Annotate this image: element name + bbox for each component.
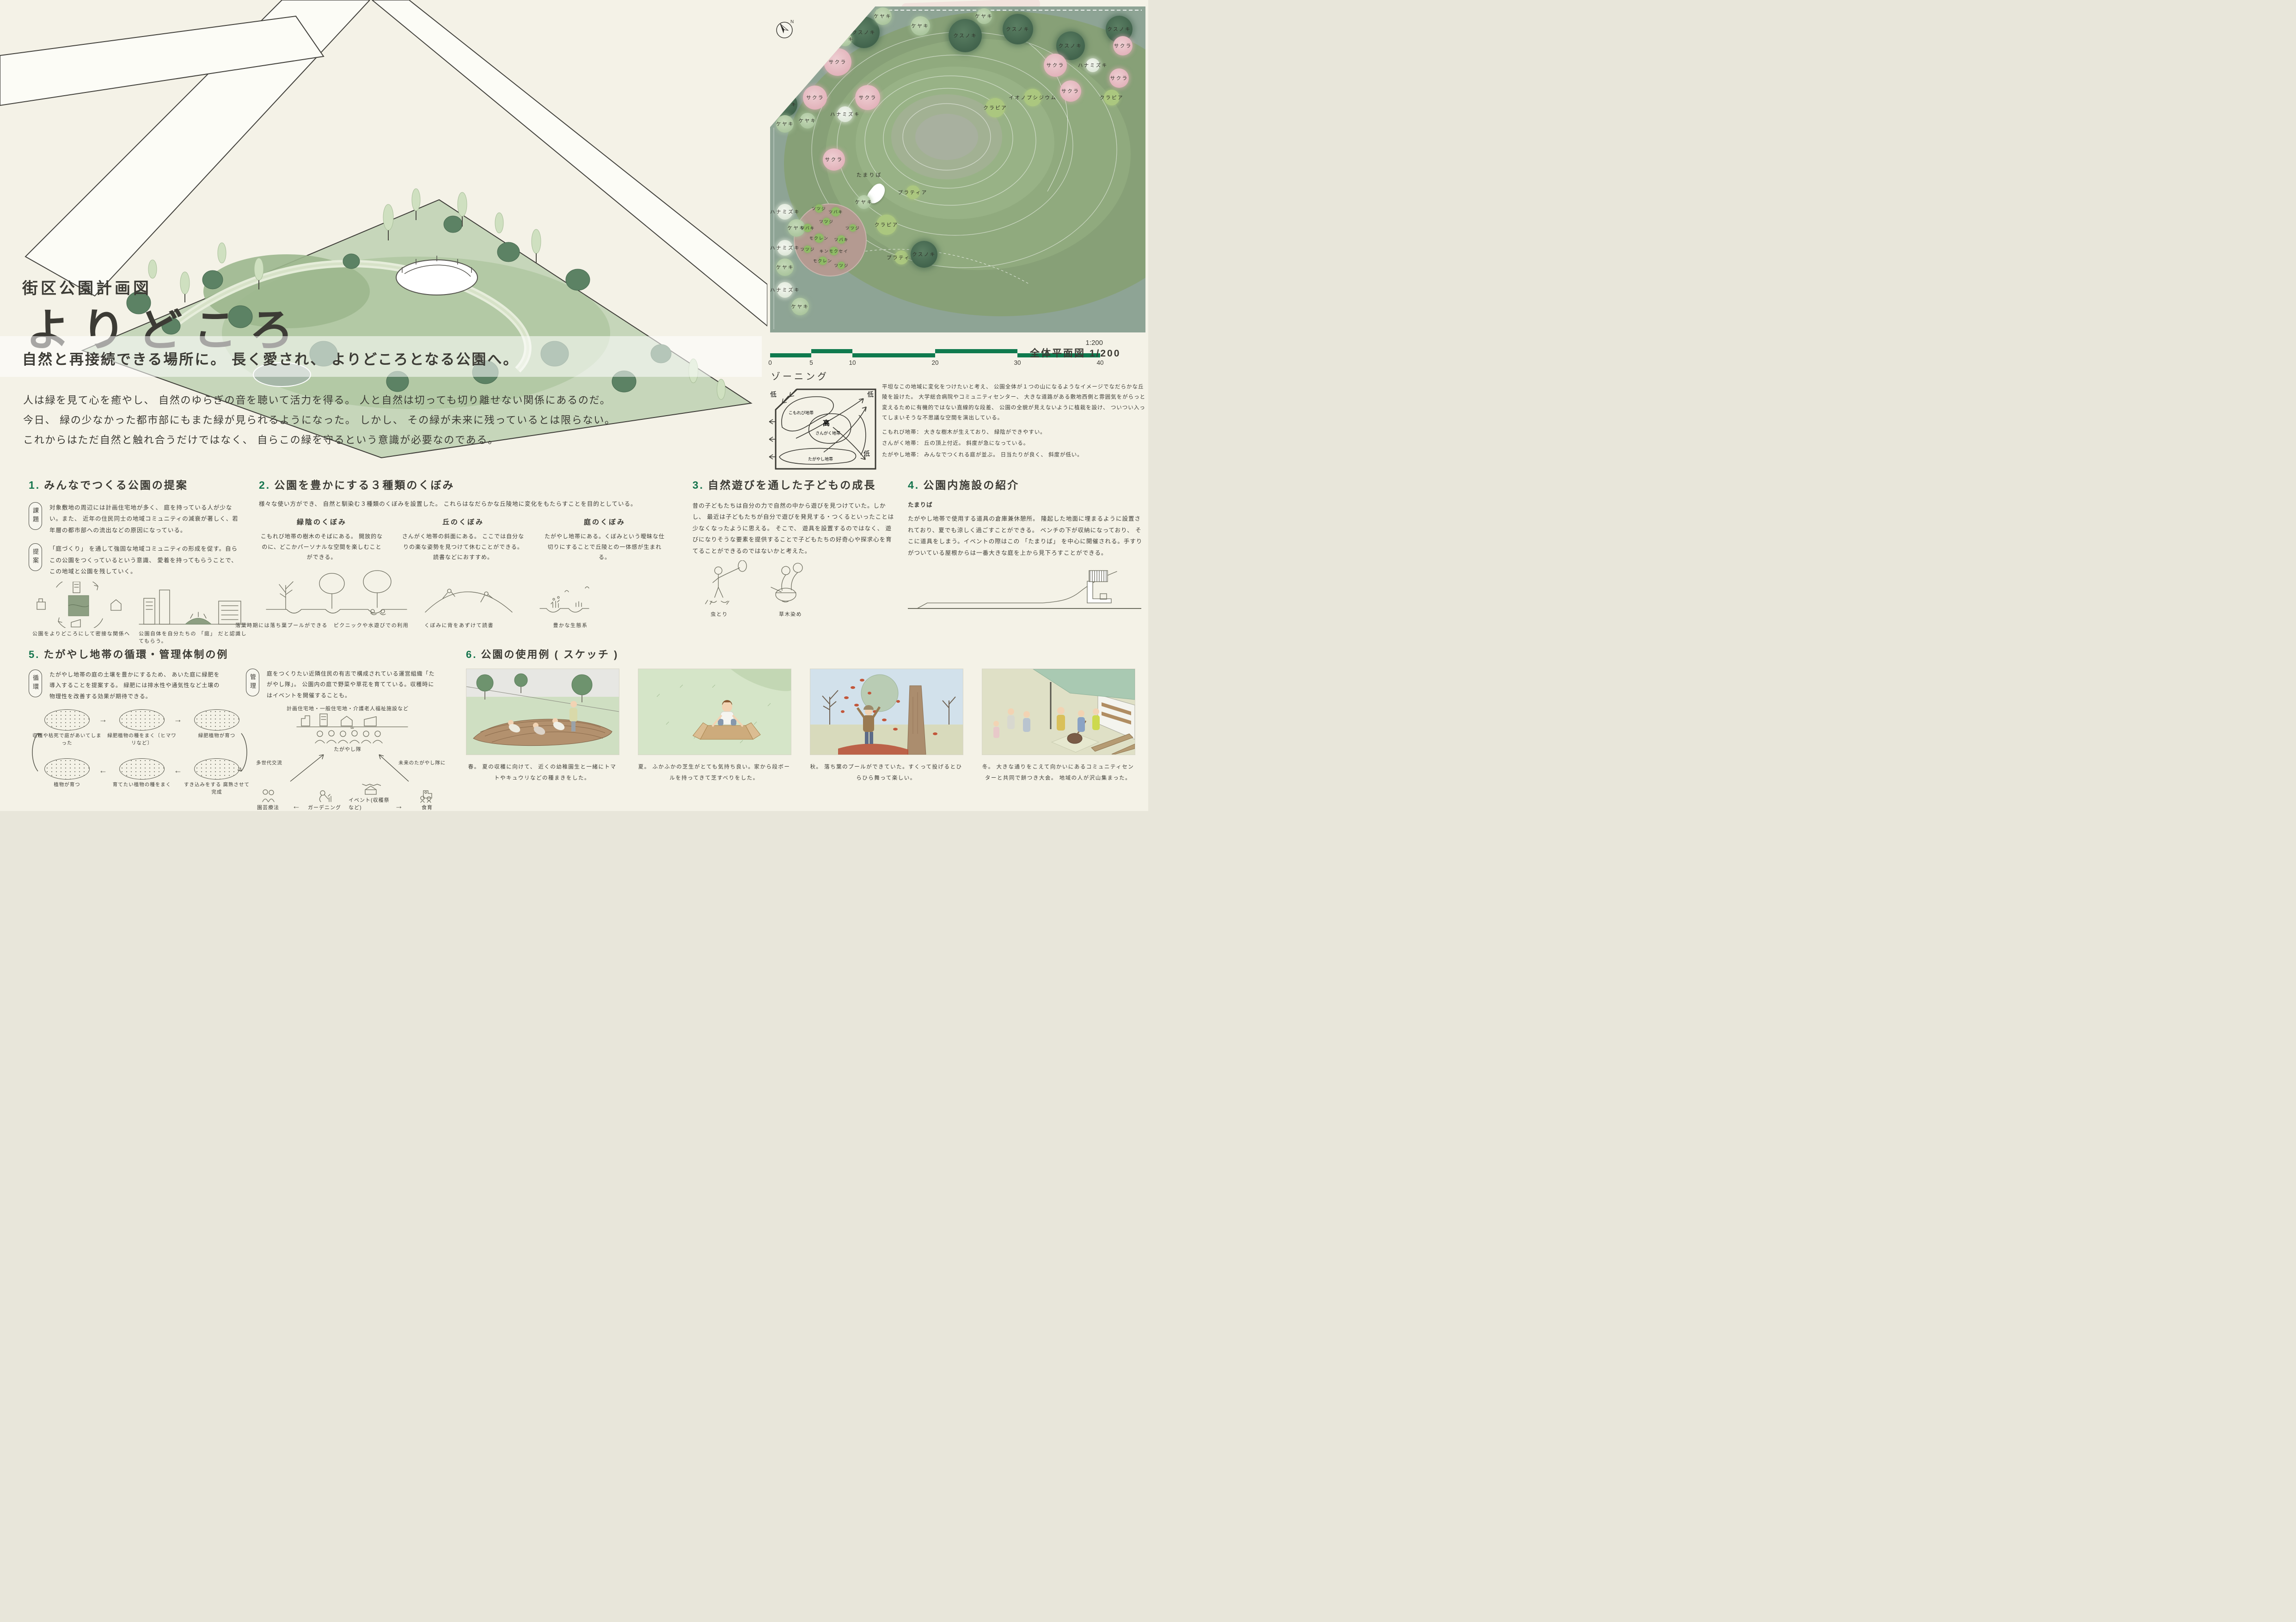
plan-tree-pink: サクラ: [855, 85, 880, 110]
org-right-arrow-label: 未来のたがやし隊に: [398, 759, 446, 766]
tree-label: ツツジ: [819, 219, 834, 225]
kubomi-desc: たがやし地帯にある。くぼみという曖昧な仕切りにすることで丘陵との一体感が生まれる…: [542, 531, 667, 562]
plan-tree-ground: クラピア: [1104, 90, 1120, 105]
kubomi-columns: 緑陰のくぼみこもれび地帯の樹木のそばにある。 開放的なのに、どこかパーソナルな空…: [259, 517, 675, 562]
community-cycle-diagram: [29, 582, 128, 628]
tamariba-subtitle: たまりば: [908, 499, 1144, 510]
tree-label: ケヤキ: [776, 120, 794, 127]
section-4-text: たがやし地帯で使用する道具の倉庫兼休憩所。 隆起した地面に埋まるように設置されて…: [908, 513, 1144, 559]
intro-line: 人は緑を見て心を癒やし、 自然のゆらぎの音を聴いて活力を得る。 人と自然は切って…: [23, 391, 652, 411]
tree-circle: [775, 68, 795, 88]
section-3-title: 自然遊びを通した子どもの成長: [708, 476, 876, 492]
zoning-flow-arrows: [796, 399, 866, 460]
tree-label: ツバキ: [834, 237, 849, 243]
zone-outlines: [779, 397, 866, 464]
tree-label: クスノキ: [773, 101, 797, 108]
cycle-node: 緑肥植物の種をまく〔ヒマワリなど〕: [107, 709, 177, 747]
issue-pill: 課題: [29, 502, 42, 530]
tree-label: ハナミズキ: [1078, 61, 1108, 68]
plan-tree-light: ケヤキ: [838, 32, 852, 46]
org-item-gardening: ガーデニング: [302, 789, 347, 811]
org-top-label: 計画住宅地・一般住宅地・介護老人福祉施設など: [246, 705, 449, 712]
tree-label: ツツジ: [800, 246, 815, 252]
org-item-therapy: 園芸療法: [246, 789, 290, 811]
plan-tree-light: ケヤキ: [790, 42, 810, 62]
plan-tree-shrub: ツツジ: [804, 246, 811, 253]
section-3-number: 3.: [692, 479, 704, 492]
cycle-node-ellipse: [44, 758, 90, 780]
plan-tree-light: ケヤキ: [857, 195, 871, 209]
tree-label: ケヤキ: [911, 23, 929, 30]
zone-label-komorebi: こもれび地帯: [789, 410, 814, 415]
section-4-title: 公園内施設の紹介: [923, 476, 1019, 492]
tree-circle: [830, 8, 852, 31]
cycle-node-caption: 緑肥植物が育つ: [198, 732, 236, 740]
org-item-food-edu: 食育: [405, 789, 449, 811]
section-1-title: みんなでつくる公園の提案: [44, 476, 188, 492]
zoning-definition: たがやし地帯： みんなでつくれる庭が並ぶ。 日当たりが良く、 斜度が低い。: [882, 450, 1146, 460]
cycle-node: 植物が育つ: [32, 758, 102, 789]
section-5: 5. たがやし地帯の循環・管理体制の例 循環 たがやし地帯の庭の土壌を豊かにする…: [29, 646, 449, 807]
cycle-pill: 循環: [29, 670, 42, 697]
plan-tree-light: ケヤキ: [911, 16, 930, 36]
tree-label: サクラ: [829, 58, 847, 65]
tree-label: ケヤキ: [874, 13, 892, 20]
plan-tree-light: ケヤキ: [776, 115, 794, 133]
plan-tree-white: ハナミズキ: [837, 106, 853, 122]
section-5-title: たがやし地帯の循環・管理体制の例: [43, 646, 228, 661]
plan-tree-pink: サクラ: [1113, 36, 1133, 55]
bug-catching-figure: [699, 560, 750, 607]
sketch-card-winter: 冬。 大きな通りをこえて向かいにあるコミュニティセンターと共同で餅つき大会。 地…: [982, 669, 1134, 784]
tree-label: クスノキ: [1006, 26, 1030, 33]
plan-tree-white: ハナミズキ: [777, 204, 793, 220]
plan-tree-light: ケヤキ: [799, 17, 823, 41]
tree-label: モクレン: [813, 258, 833, 264]
org-item-label: 食育: [422, 804, 433, 811]
kubomi-title: 丘のくぼみ: [400, 517, 526, 527]
sketch-caption-spring: 春。 夏の収穫に向けて、 近くの幼稚園生と一緒にトマトやキュウリなどの種まきをし…: [466, 762, 618, 784]
tree-label: サクラ: [1110, 75, 1128, 82]
section-3-caption-2: 草木染め: [779, 610, 802, 618]
tree-label: クスノキ: [852, 29, 876, 36]
plan-tree-dark: クスノキ: [1003, 14, 1033, 44]
tree-label: ケヤキ: [802, 26, 820, 33]
intro-line: これからはただ自然と触れ合うだけではなく、 自らこの緑を守るという意識が必要なの…: [23, 430, 652, 450]
plan-tree-pink: サクラ: [1109, 68, 1129, 88]
tree-label: クスノキ: [777, 55, 801, 62]
tree-label: ツツジ: [845, 225, 860, 231]
section-3: 3. 自然遊びを通した子どもの成長 昔の子どもたちは自分の力で自然の中から遊びを…: [692, 476, 896, 625]
tree-label: サクラ: [859, 94, 877, 101]
intro-body: 人は緑を見て心を癒やし、 自然のゆらぎの音を聴いて活力を得る。 人と自然は切って…: [23, 391, 652, 450]
scale-tick: 30: [1014, 359, 1021, 366]
org-item-label: イベント(収穫祭など): [349, 796, 393, 811]
scale-tick: 10: [849, 359, 856, 366]
kubomi-desc: さんがく地帯の斜面にある。 ここでは自分なりの楽な姿勢を見つけて休むことができる…: [400, 531, 526, 562]
scale-tick: 40: [1096, 359, 1103, 366]
section-3-figures: 虫とり 草木染め: [692, 560, 896, 625]
kubomi-caption-4: 豊かな生態系: [553, 621, 588, 629]
proposal-pill: 提案: [29, 543, 42, 571]
cycle-node: 緑肥植物が育つ: [182, 709, 251, 740]
kubomi-desc: こもれび地帯の樹木のそばにある。 開放的なのに、どこかパーソナルな空間を楽しむこ…: [259, 531, 385, 562]
tree-label: ツバキ: [828, 209, 843, 215]
tree-label: ケヤキ: [799, 117, 817, 124]
section-2: 2. 公園を豊かにする３種類のくぼみ 様々な使い方ができ、 自然と馴染む３種類の…: [259, 476, 675, 634]
buildings-row-icons: [246, 712, 449, 729]
plan-tree-light: ケヤキ: [775, 68, 795, 88]
plan-tree-white: ハナミズキ: [1086, 58, 1100, 72]
plan-tree-shrub: ツバキ: [803, 224, 812, 232]
org-arrow-left: ←: [292, 801, 300, 811]
section-3-text: 昔の子どもたちは自分の力で自然の中から遊びを見つけていた。しかし、 最近は子ども…: [692, 500, 896, 557]
tree-label: クスノキ: [1107, 26, 1131, 33]
manage-text: 庭をつくりたい近隣住民の有志で構成されている運営組織「たがやし隊」。 公園内の庭…: [267, 669, 438, 701]
management-org-diagram: 計画住宅地・一般住宅地・介護老人福祉施設など: [246, 705, 449, 811]
cycle-node: すき込みをする 腐熟させて完成: [182, 758, 251, 796]
plan-tree-pink: サクラ: [824, 48, 851, 76]
tree-label: クラピア: [875, 221, 899, 228]
kubomi-caption-3: くぼみに背をあずけて読書: [424, 621, 494, 629]
tree-label: ハナミズキ: [830, 111, 860, 117]
tree-label: サクラ: [1047, 61, 1065, 68]
tree-label: クスノキ: [953, 32, 977, 39]
plan-tree-light: ケヤキ: [776, 258, 794, 276]
usage-sketch-cards: 春。 夏の収穫に向けて、 近くの幼稚園生と一緒にトマトやキュウリなどの種まきをし…: [466, 669, 1141, 784]
issue-text: 対象敷地の周辺には計画住宅地が多く、 庭を持っている人が少ない。また、 近年の住…: [49, 502, 239, 536]
section-2-title: 公園を豊かにする３種類のくぼみ: [274, 476, 454, 492]
plant-dyeing-figure: [762, 560, 822, 607]
zoning-low-label: 低: [770, 391, 777, 398]
tree-label: ツバキ: [800, 225, 815, 231]
org-left-arrow-label: 多世代交流: [256, 759, 282, 766]
plan-tree-shrub: ツツジ: [849, 224, 857, 232]
compass-icon: N: [775, 18, 796, 40]
plan-tree-dark: クスノキ: [776, 45, 802, 72]
org-item-label: ガーデニング: [308, 804, 341, 811]
zoning-hatch-arrows: [769, 389, 796, 459]
sketch-caption-autumn: 秋。 落ち葉のプールができていた。すくって投げるとひらひら舞って楽しい。: [810, 762, 962, 784]
site-plan: たまりば ケヤキケヤキケヤキクスノキケヤキケヤキクスノキケヤキクスノキクスノキク…: [770, 6, 1145, 332]
tree-circle: [790, 42, 810, 62]
subtitle: 自然と再接続できる場所に。 長く愛され、 よりどころとなる公園へ。: [22, 348, 519, 369]
plan-tree-shrub: ツツジ: [838, 262, 845, 269]
scale-tick: 20: [931, 359, 938, 366]
autumn-sketch: [810, 669, 963, 755]
plan-tree-ground: イオノプシジウム: [1024, 89, 1041, 106]
tree-label: ケヤキ: [776, 75, 794, 82]
section-5-number: 5.: [29, 649, 40, 661]
plan-tree-ground: クラピア: [986, 98, 1005, 117]
kubomi-caption-1: 落葉時期には落ち葉プールができる: [235, 621, 328, 629]
sketch-caption-winter: 冬。 大きな通りをこえて向かいにあるコミュニティセンターと共同で餅つき大会。 地…: [982, 762, 1134, 784]
cycle-node-ellipse: [194, 709, 239, 731]
tree-label: モクレン: [809, 235, 829, 241]
tree-circle: [799, 17, 823, 41]
section-2-intro: 様々な使い方ができ、 自然と馴染む３種類のくぼみを設置した。 これらはなだらかな…: [259, 498, 675, 510]
tree-label: クスノキ: [1059, 42, 1083, 49]
cycle-node-ellipse: [119, 709, 165, 731]
section-1-caption-left: 公園をよりどころにして密接な関係へ: [32, 630, 130, 637]
cycle-node: 育てたい植物の種をまく: [107, 758, 177, 789]
tree-label: イオノプシジウム: [1009, 94, 1057, 101]
plan-tree-shrub: モクレン: [814, 233, 824, 243]
plan-tree-pink: サクラ: [803, 86, 827, 110]
cycle-node: 収穫や枯死で庭があいてしまった: [32, 709, 102, 747]
plan-tree-dark: クスノキ: [911, 241, 937, 268]
plan-tree-shrub: キンモクセイ: [830, 247, 838, 255]
scale-tick: 5: [809, 359, 813, 366]
tree-label: ハナミズキ: [770, 244, 800, 251]
tree-label: ケヤキ: [791, 49, 809, 55]
kubomi-column: 庭のくぼみたがやし地帯にある。くぼみという曖昧な仕切りにすることで丘陵との一体感…: [542, 517, 667, 562]
plan-tree-white: ハナミズキ: [777, 240, 793, 256]
scale-tick: 0: [768, 359, 772, 366]
garden-awareness-diagram: [137, 582, 248, 628]
cycle-node-caption: 緑肥植物の種をまく〔ヒマワリなど〕: [107, 732, 177, 747]
kubomi-caption-2: ピクニックや水遊びでの利用: [334, 621, 409, 629]
tree-label: ツツジ: [812, 206, 827, 212]
plan-tree-light: ケヤキ: [976, 8, 992, 24]
tamariba-section-drawing: [908, 562, 1141, 613]
tree-label: ケヤキ: [776, 264, 794, 271]
cycle-node-caption: すき込みをする 腐熟させて完成: [182, 781, 251, 796]
tree-label: サクラ: [1114, 42, 1132, 49]
sketch-card-spring: 春。 夏の収穫に向けて、 近くの幼稚園生と一緒にトマトやキュウリなどの種まきをし…: [466, 669, 618, 784]
kubomi-column: 緑陰のくぼみこもれび地帯の樹木のそばにある。 開放的なのに、どこかパーソナルな空…: [259, 517, 385, 562]
kubomi-title: 庭のくぼみ: [542, 517, 667, 527]
section-6: 6. 公園の使用例 ( スケッチ ) 春。 夏の収穫に向けて、 近くの幼稚園生と…: [466, 646, 1141, 784]
tree-label: ハナミズキ: [770, 287, 800, 294]
org-item-event: イベント(収穫祭など): [349, 781, 393, 811]
cycle-text: たがやし地帯の庭の土壌を豊かにするため、 あいた庭に緑肥を導入することを提案する…: [49, 670, 225, 702]
spring-sketch: [466, 669, 619, 755]
kubomi-sketch-strip: [259, 565, 666, 620]
zoning-definition: さんがく地帯： 丘の頂上付近。 斜度が急になっている。: [882, 438, 1146, 449]
plan-tree-light: ケヤキ: [791, 298, 809, 315]
kubomi-title: 緑陰のくぼみ: [259, 517, 385, 527]
tree-label: キンモクセイ: [820, 248, 849, 254]
zoning-definition: こもれび地帯： 大きな樹木が生えており、 緑陰ができやすい。: [882, 427, 1146, 437]
green-manure-cycle-diagram: → → ← ← 収穫や枯死で庭があいてしまった緑肥植物の種をまく〔ヒマワリなど〕…: [29, 707, 251, 807]
plan-tree-shrub: ツバキ: [831, 207, 840, 216]
section-6-number: 6.: [466, 649, 477, 661]
sketch-caption-summer: 夏。 ふかふかの芝生がとても気持ち良い。家から段ボールを持ってきて芝すべりをした…: [638, 762, 790, 784]
plan-tree-shrub: ツバキ: [837, 235, 845, 244]
zoning-title: ゾーニング: [771, 369, 829, 382]
zoning-low-label: 低: [867, 391, 874, 398]
plan-tree-shrub: ツツジ: [823, 218, 830, 225]
tree-label: クラピア: [1100, 94, 1124, 101]
tree-label: ケヤキ: [855, 199, 873, 206]
tree-label: サクラ: [806, 94, 824, 101]
tree-label: ツツジ: [834, 263, 849, 269]
section-2-number: 2.: [259, 479, 270, 492]
plan-tree-shrub: ツツジ: [815, 204, 823, 213]
management-block: 管理 庭をつくりたい近隣住民の有志で構成されている運営組織「たがやし隊」。 公園…: [246, 669, 449, 811]
plan-tree-pink: サクラ: [1044, 54, 1067, 77]
org-bottom-row: 園芸療法 ← ガーデニング イベント(収穫祭など) → 食育: [246, 781, 449, 811]
section-1-diagrams: 公園をよりどころにして密接な関係へ 公園自体を自分たちの 「庭」 だと認識しても…: [29, 582, 251, 637]
tree-label: ケヤキ: [791, 303, 809, 310]
proposal-text: 「庭づくり」 を通して強固な地域コミュニティの形成を促す。自らこの公園をつくって…: [49, 543, 239, 577]
section-1-number: 1.: [29, 479, 40, 492]
summer-sketch: [638, 669, 791, 755]
cycle-node-ellipse: [194, 758, 239, 780]
section-4: 4. 公園内施設の紹介 たまりば たがやし地帯で使用する道具の倉庫兼休憩所。 隆…: [908, 476, 1144, 615]
tree-label: ケヤキ: [836, 36, 854, 43]
tagayashi-team-icons: [246, 730, 449, 744]
zoning-high-label: 高: [823, 419, 830, 427]
org-arrow-right: →: [395, 801, 403, 811]
tree-circle: [776, 45, 802, 72]
tamariba-label: たまりば: [857, 171, 882, 178]
cycle-node-ellipse: [119, 758, 165, 780]
plan-tree-light: ケヤキ: [800, 113, 815, 129]
zoning-definitions: こもれび地帯： 大きな樹木が生えており、 緑陰ができやすい。さんがく地帯： 丘の…: [882, 427, 1146, 460]
tree-label: クスノキ: [912, 251, 936, 258]
tree-label: ハナミズキ: [770, 209, 800, 215]
winter-sketch: [982, 669, 1135, 755]
plan-tree-white: ハナミズキ: [777, 282, 793, 298]
zone-label-tagayashi: たがやし地帯: [808, 456, 833, 461]
intro-line: 今日、 緑の少なかった都市部にもまた緑が見られるようになった。 しかし、 その緑…: [23, 411, 652, 430]
tree-label: サクラ: [1061, 88, 1079, 95]
section-1: 1. みんなでつくる公園の提案 課題 対象敷地の周辺には計画住宅地が多く、 庭を…: [29, 476, 251, 637]
plan-tree-light: ケヤキ: [830, 8, 852, 31]
kubomi-sketches: 落葉時期には落ち葉プールができる ピクニックや水遊びでの利用 くぼみに背をあずけ…: [259, 565, 675, 634]
zoning-diagram: 低 低 低 高 こもれび地帯 さんがく地帯 たがやし地帯: [768, 383, 880, 473]
plan-tree-dark: クスノキ: [772, 92, 797, 117]
plan-tree-ground: プラティア: [894, 251, 908, 264]
plan-caption: 全体平面図 1/200: [1030, 346, 1120, 360]
compass-n-label: N: [790, 19, 794, 25]
cycle-node-ellipse: [44, 709, 90, 731]
section-6-title: 公園の使用例 ( スケッチ ): [481, 646, 618, 661]
cycle-node-caption: 育てたい植物の種をまく: [113, 781, 171, 789]
plan-tree-light: ケヤキ: [874, 7, 892, 25]
plan-tree-ground: プラティア: [906, 185, 920, 199]
zoning-text: 平坦なこの地域に変化をつけたいと考え、 公園全体が１つの山になるようなイメージで…: [882, 382, 1146, 460]
plan-tree-pink: サクラ: [823, 148, 845, 171]
kubomi-column: 丘のくぼみさんがく地帯の斜面にある。 ここでは自分なりの楽な姿勢を見つけて休むこ…: [400, 517, 526, 562]
manage-pill: 管理: [246, 669, 259, 696]
section-1-caption-right: 公園自体を自分たちの 「庭」 だと認識してもらう。: [139, 630, 251, 645]
tree-label: プラティア: [898, 189, 927, 196]
plan-tree-ground: クラピア: [876, 215, 897, 235]
tree-label: ケヤキ: [975, 13, 993, 20]
zoning-paragraph: 平坦なこの地域に変化をつけたいと考え、 公園全体が１つの山になるようなイメージで…: [882, 382, 1146, 424]
section-4-number: 4.: [908, 479, 919, 492]
cycle-node-caption: 植物が育つ: [54, 781, 80, 789]
presentation-board: 街区公園計画図 よりどころ 自然と再接続できる場所に。 長く愛され、 よりどころ…: [0, 0, 1148, 811]
section-3-caption-1: 虫とり: [710, 610, 728, 618]
plan-tree-shrub: モクレン: [819, 257, 827, 265]
plan-tree-pink: サクラ: [1060, 80, 1081, 102]
zone-label-sangaku: さんがく地帯: [815, 430, 840, 436]
zoning-low-label: 低: [863, 450, 870, 457]
org-item-label: 園芸療法: [257, 804, 279, 811]
tree-label: ケヤキ: [833, 16, 851, 23]
tree-label: サクラ: [825, 156, 843, 163]
sketch-card-summer: 夏。 ふかふかの芝生がとても気持ち良い。家から段ボールを持ってきて芝すべりをした…: [638, 669, 790, 784]
plan-tree-dark: クスノキ: [949, 19, 982, 52]
sketch-card-autumn: 秋。 落ち葉のプールができていた。すくって投げるとひらひら舞って楽しい。: [810, 669, 962, 784]
tree-label: クラピア: [983, 104, 1007, 111]
cycle-node-caption: 収穫や枯死で庭があいてしまった: [32, 732, 102, 747]
